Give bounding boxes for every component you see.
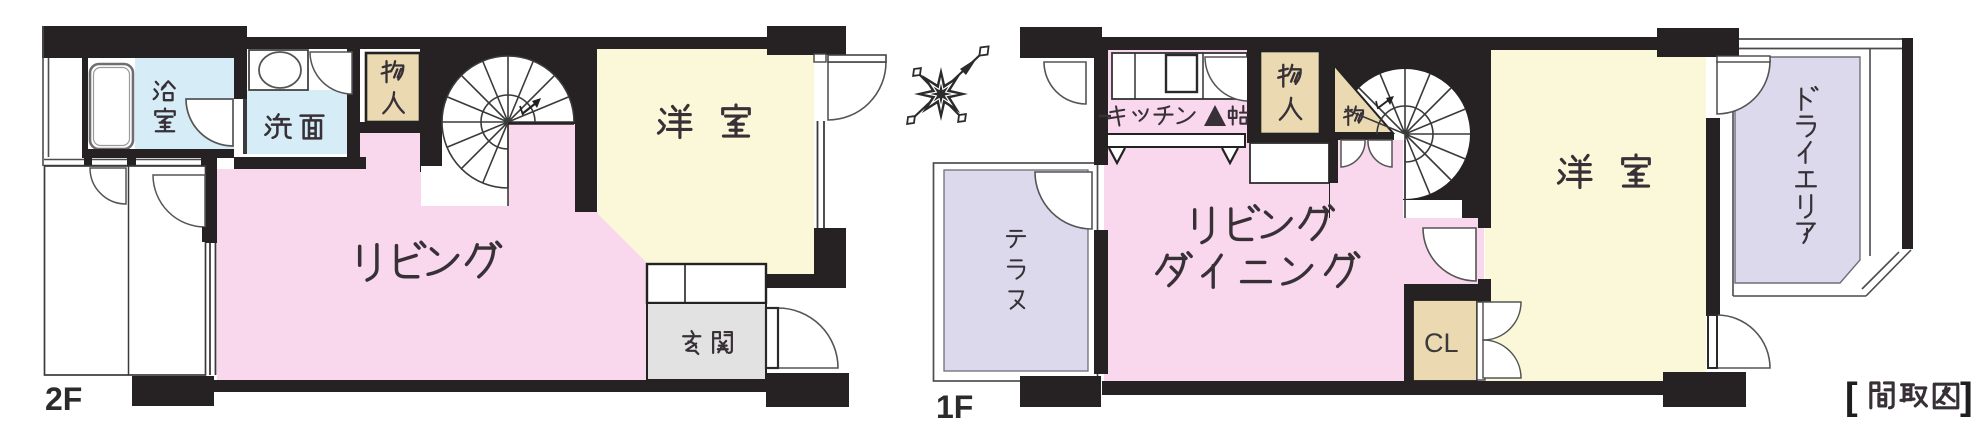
svg-text:]: ] [1960,376,1973,418]
svg-text:CL: CL [1424,328,1459,358]
svg-text:1F: 1F [936,389,973,425]
svg-text:2F: 2F [45,381,82,417]
svg-text:[: [ [1845,376,1858,418]
